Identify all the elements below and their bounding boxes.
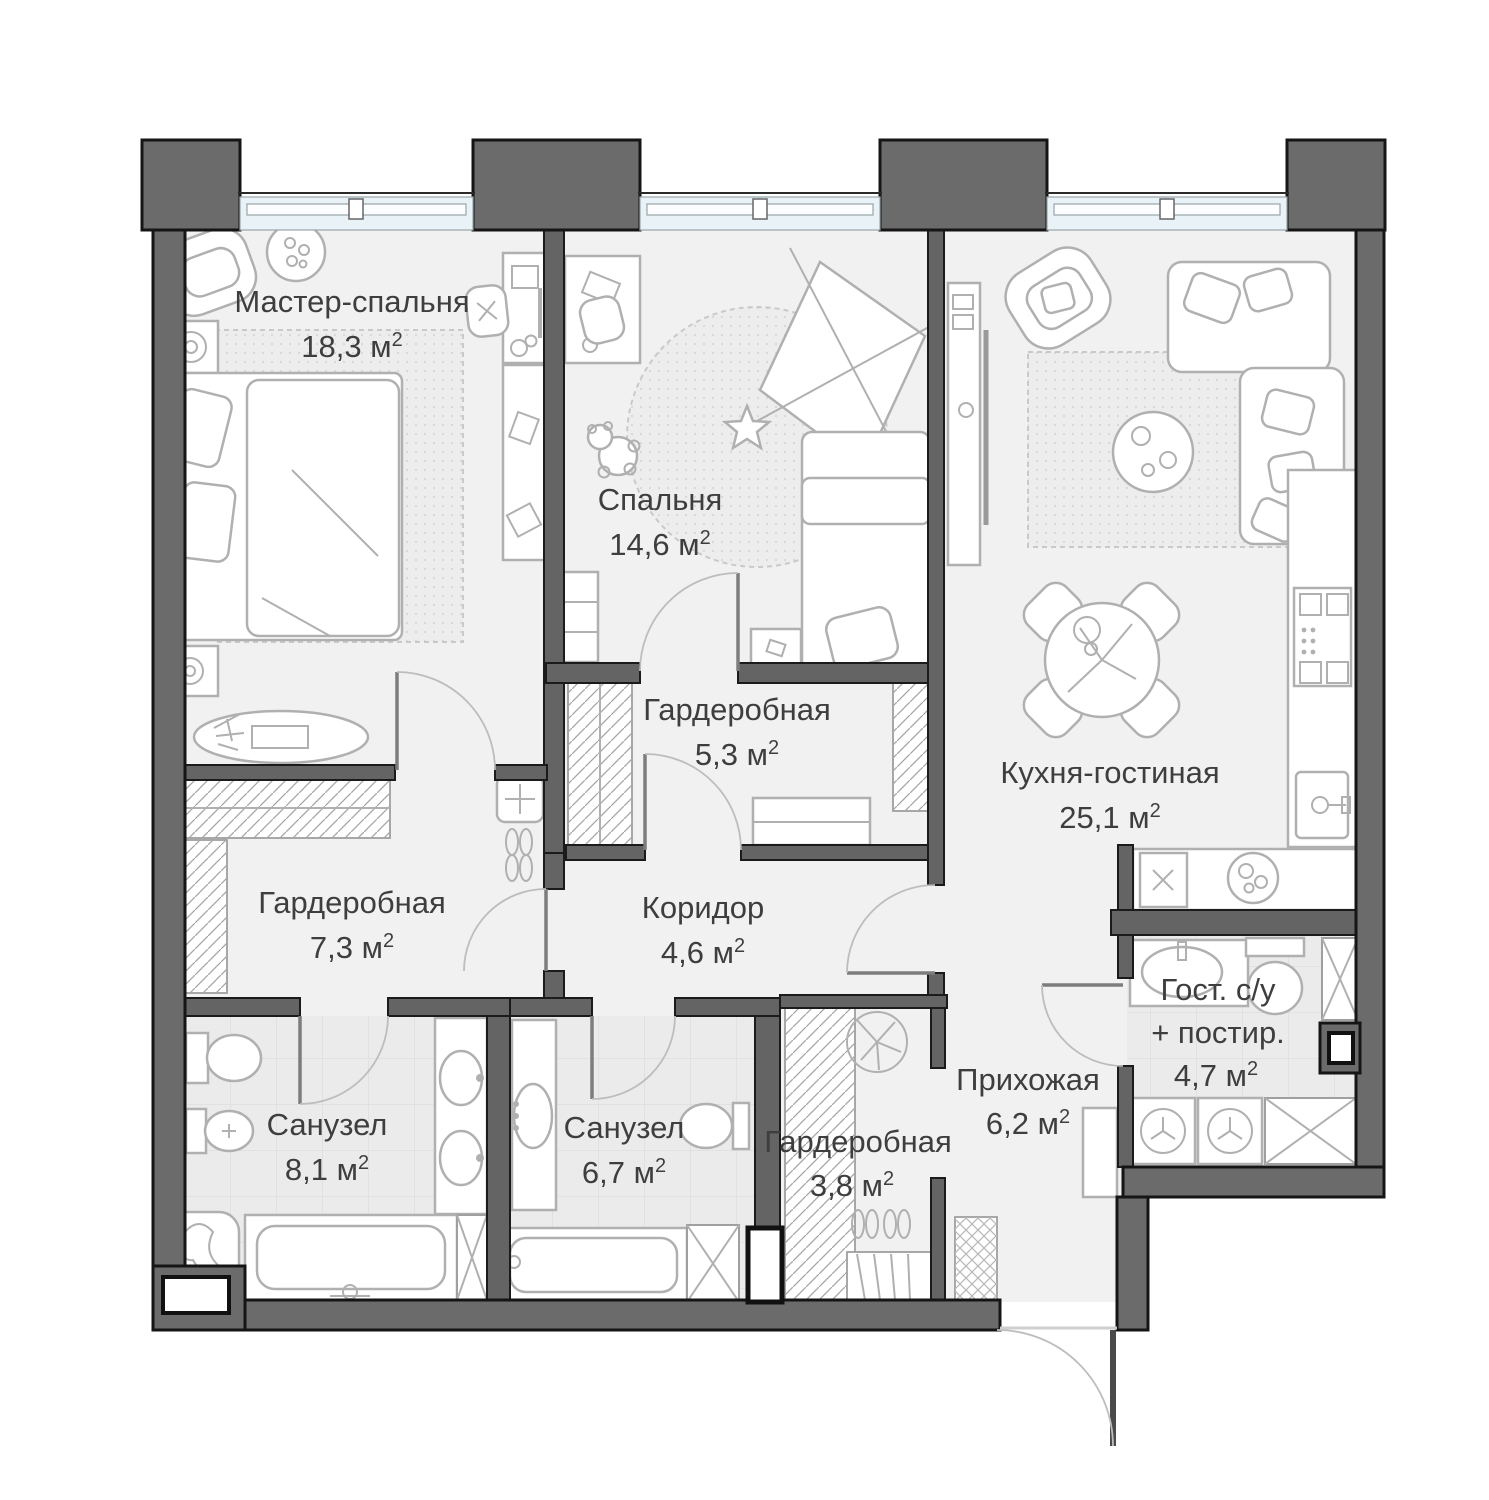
room-label-wardrobe-3-8: Гардеробная	[764, 1124, 952, 1159]
sink-icon	[512, 1020, 556, 1210]
tv-console-icon	[948, 283, 986, 565]
wall	[1118, 1066, 1133, 1167]
wall	[755, 1016, 780, 1228]
window-living	[1045, 193, 1289, 230]
room-label-wardrobe-7-3: Гардеробная	[258, 885, 446, 920]
stool-icon	[464, 284, 509, 338]
room-area-bedroom: 14,6 м2	[609, 527, 710, 562]
closet-rail-icon	[893, 679, 932, 811]
wall-clock-icon	[267, 223, 325, 281]
closet-rail-icon	[568, 679, 632, 847]
kitchen-counter	[1288, 470, 1356, 847]
double-sink-icon	[435, 1018, 487, 1214]
room-label-bathroom-2: Санузел	[564, 1110, 685, 1145]
wall	[544, 853, 564, 889]
stove-icon	[1294, 588, 1351, 686]
duct-shaft	[748, 1228, 782, 1302]
room-label-hallway: Прихожая	[956, 1062, 1100, 1097]
wall	[741, 845, 931, 860]
toilet-icon	[186, 1033, 261, 1083]
shaft-icon	[457, 1215, 487, 1300]
console-icon	[1083, 1108, 1117, 1197]
shaft-icon	[687, 1225, 739, 1302]
plate-decor-icon	[1228, 853, 1278, 903]
room-area-guest-wc: 4,7 м2	[1174, 1058, 1258, 1093]
windows	[238, 193, 1289, 230]
pouf-icon	[497, 776, 543, 822]
wall	[931, 1178, 945, 1302]
wall	[566, 845, 645, 860]
shaft-icon	[1265, 1098, 1356, 1164]
wall	[487, 1016, 510, 1302]
room-area-hallway: 6,2 м2	[986, 1106, 1070, 1141]
exterior-wall	[153, 1300, 1000, 1330]
wall-niche	[163, 1277, 229, 1313]
single-bed-icon	[802, 432, 930, 676]
closet-icon	[503, 365, 545, 560]
exterior-wall	[153, 228, 185, 1330]
wall	[495, 765, 547, 780]
room-area-bathroom-1: 8,1 м2	[285, 1152, 369, 1187]
double-bed-icon	[165, 373, 402, 640]
wall	[388, 998, 510, 1016]
cabinet-icon	[753, 798, 870, 845]
room-label-bedroom: Спальня	[598, 482, 723, 517]
nightstand-icon	[751, 629, 801, 667]
room-area-bathroom-2: 6,7 м2	[582, 1155, 666, 1190]
wall	[185, 998, 300, 1016]
bathtub-icon	[245, 1215, 457, 1300]
console-icon	[194, 711, 368, 763]
room-area-wardrobe-5-3: 5,3 м2	[695, 737, 779, 772]
wall-niche	[1329, 1033, 1353, 1063]
room-label-kitchen-living: Кухня-гостиная	[1000, 755, 1219, 790]
column	[142, 140, 240, 230]
room-label-bathroom-1: Санузел	[267, 1107, 388, 1142]
wall	[1111, 910, 1356, 935]
floor-plan: Мастер-спальня 18,3 м2 Спальня 14,6 м2 Г…	[0, 0, 1489, 1500]
room-label-master-bedroom: Мастер-спальня	[234, 284, 469, 319]
room-area-kitchen-living: 25,1 м2	[1059, 800, 1160, 835]
wall	[780, 995, 947, 1008]
room-area-master-bedroom: 18,3 м2	[301, 329, 402, 364]
wall	[544, 971, 564, 1000]
doormat-icon	[955, 1217, 997, 1302]
kitchen-lower-counter	[1133, 849, 1356, 910]
coffee-table-icon	[1113, 412, 1193, 492]
wall	[928, 228, 944, 885]
floor-plan-canvas: Мастер-спальня 18,3 м2 Спальня 14,6 м2 Г…	[0, 0, 1489, 1500]
bathtub-icon	[500, 1228, 687, 1302]
window-master	[238, 193, 475, 230]
wall	[510, 998, 592, 1016]
window-bedroom	[638, 193, 882, 230]
exterior-wall	[1117, 1197, 1148, 1330]
toilet-icon	[680, 1103, 749, 1149]
wall	[931, 1008, 945, 1068]
dishwasher-icon	[1140, 853, 1187, 907]
bidet-icon	[186, 1109, 253, 1153]
room-label-guest-wc: Гост. с/у	[1160, 972, 1276, 1007]
vanity-table-icon	[503, 253, 545, 363]
room-area-corridor: 4,6 м2	[661, 935, 745, 970]
shoe-rack-icon	[847, 1252, 933, 1302]
closet-rail-icon	[165, 778, 390, 838]
column	[473, 140, 640, 230]
column	[1287, 140, 1385, 230]
washing-machine-icon	[1198, 1098, 1262, 1164]
shaft-icon	[1322, 938, 1358, 1020]
door-entrance	[997, 1328, 1117, 1446]
wall	[163, 765, 395, 780]
room-label-wardrobe-5-3: Гардеробная	[643, 692, 831, 727]
wall	[738, 663, 930, 683]
column	[880, 140, 1047, 230]
wall	[675, 998, 780, 1016]
room-area-wardrobe-7-3: 7,3 м2	[310, 930, 394, 965]
exterior-wall	[1123, 1167, 1384, 1197]
kitchen-sink-icon	[1296, 772, 1350, 838]
room-area-wardrobe-3-8: 3,8 м2	[810, 1168, 894, 1203]
wall	[928, 973, 944, 997]
wall	[546, 663, 640, 683]
washing-machine-icon	[1131, 1098, 1195, 1164]
wall	[544, 228, 564, 853]
room-label-guest-wc-2: + постир.	[1151, 1015, 1285, 1050]
room-label-corridor: Коридор	[642, 890, 764, 925]
